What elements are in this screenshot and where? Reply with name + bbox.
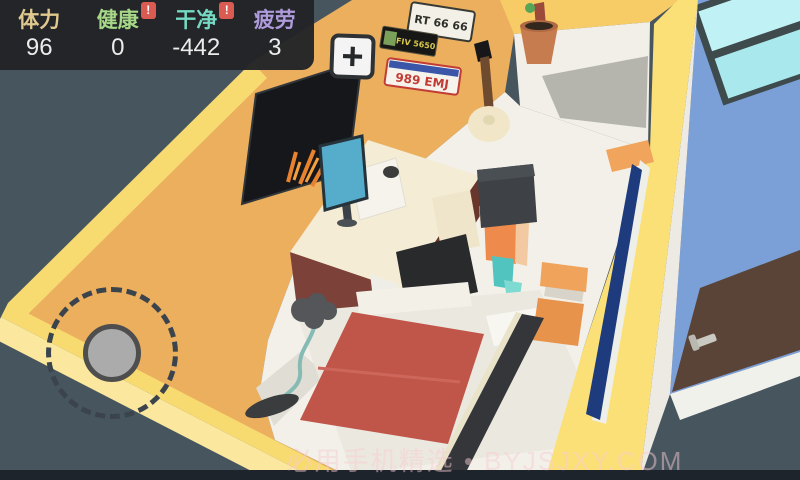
watermark: 必用手机精选 • BYJSJXY.COM: [170, 441, 800, 478]
stat-stamina: 体力 96: [0, 10, 79, 60]
stat-clean: 干净! -442: [157, 10, 236, 60]
stat-fatigue: 疲劳 3: [236, 10, 315, 60]
stat-label: 健康: [97, 9, 139, 32]
joystick[interactable]: [46, 287, 178, 419]
mouse: [383, 166, 399, 178]
stat-value: 3: [236, 35, 315, 60]
stat-health: 健康! 0: [79, 10, 158, 60]
stat-value: 96: [0, 35, 79, 60]
game-screen: RT 66 66 FIV 5650 989 EMJ: [0, 0, 800, 480]
alert-icon: !: [219, 2, 234, 19]
plus-icon: +: [341, 37, 365, 76]
stat-label: 疲劳: [254, 10, 296, 32]
hud-panel: 体力 96 健康! 0 干净! -442 疲劳 3: [0, 0, 314, 70]
stat-value: 0: [79, 35, 158, 60]
stat-label: 干净: [175, 9, 217, 32]
add-button[interactable]: +: [329, 33, 376, 80]
joystick-knob[interactable]: [83, 324, 141, 382]
character-arm: [515, 220, 529, 266]
alert-icon: !: [141, 2, 156, 19]
stat-value: -442: [157, 35, 236, 60]
stat-label: 体力: [18, 10, 60, 32]
